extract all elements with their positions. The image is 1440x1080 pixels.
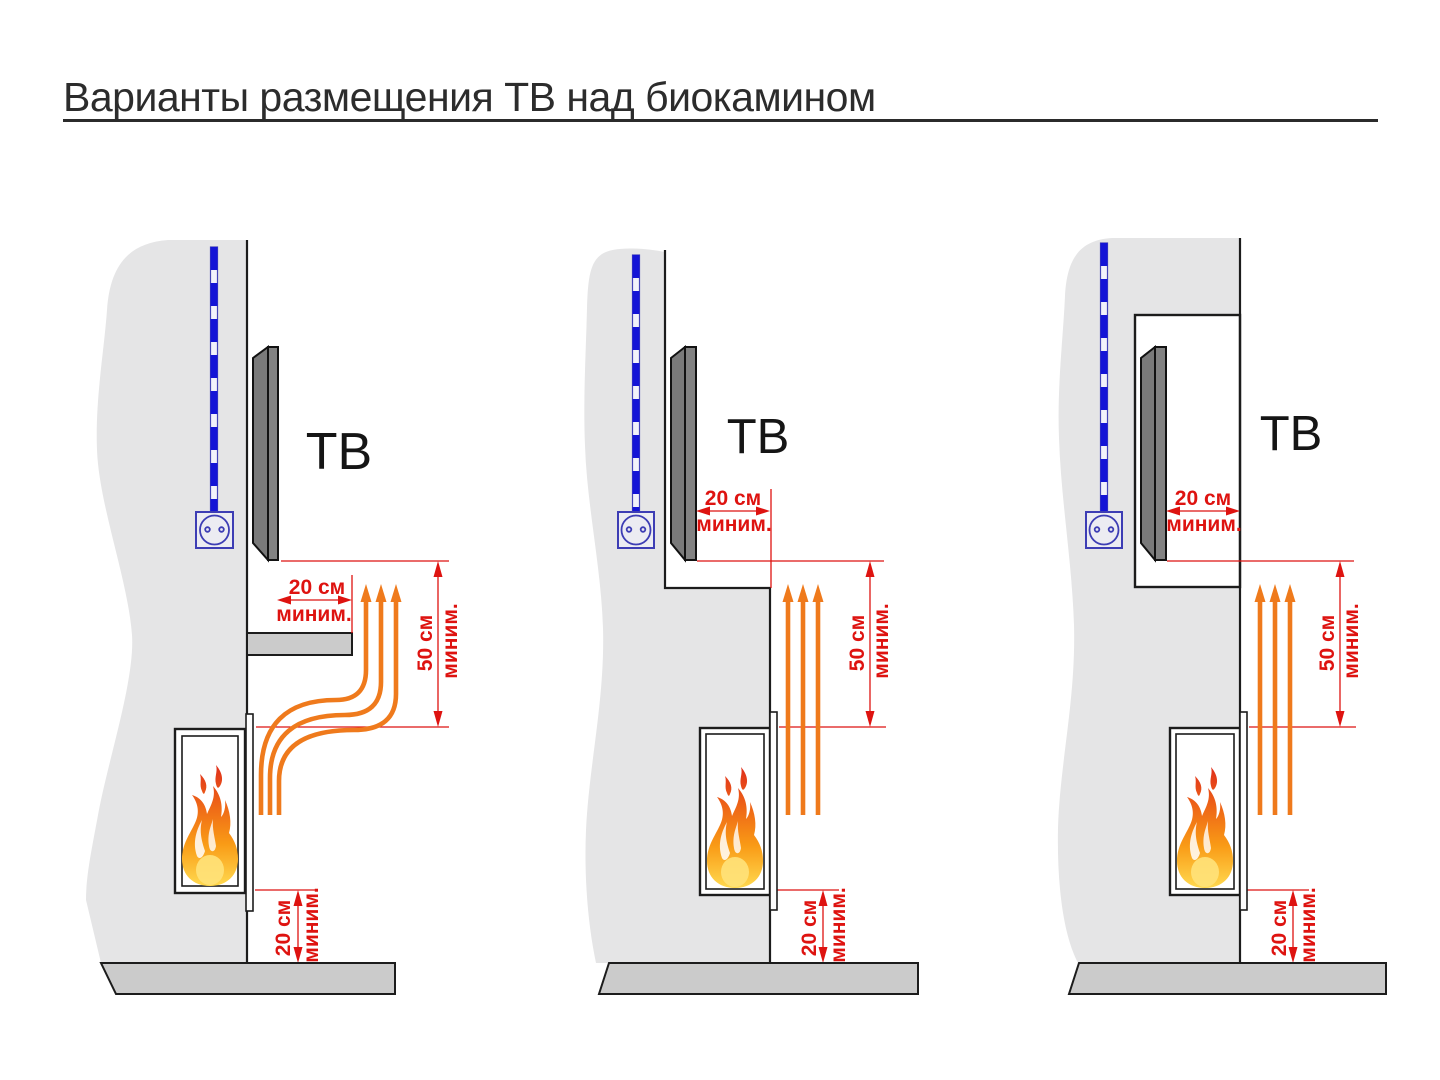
tv-label: ТВ [727,410,790,464]
dim-vertical-value: 50 см [1316,615,1339,671]
dim-front-value: 20 см [289,576,345,599]
glass-panel [246,714,253,911]
diagram-tv-above-shelf: ТВ 20 см миним. 50 см миним. [86,240,462,994]
tv-side-view [1155,347,1166,560]
dim-vertical-value: 50 см [846,615,869,671]
power-outlet-icon [1086,512,1122,548]
dim-front-value: 20 см [1175,487,1231,510]
floor-slab [101,963,395,994]
diagram-tv-recessed-step: ТВ 20 см миним. 50 см миним. [584,248,918,994]
tv-back-panel [253,347,268,560]
dim-front-qualifier: миним. [696,513,771,536]
heat-flow-arrows [1255,584,1296,815]
dim-floor-qualifier: миним. [1297,887,1320,962]
dim-floor-qualifier: миним. [827,887,850,962]
dim-front-clearance: 20 см миним. [276,576,352,626]
tv-label: ТВ [306,423,372,481]
tv-side-view [268,347,278,560]
dim-floor-clearance: 20 см миним. [1268,887,1320,963]
dim-vertical-clearance: 50 см миним. [414,561,462,727]
dim-front-qualifier: миним. [276,603,351,626]
tv-back-panel [1141,347,1155,560]
dim-front-clearance: 20 см миним. [1166,487,1242,536]
dim-front-value: 20 см [705,487,761,510]
dim-vertical-qualifier: миним. [439,603,462,678]
dim-vertical-qualifier: миним. [870,603,893,678]
tv-back-panel [671,347,685,560]
dim-floor-clearance: 20 см миним. [272,887,323,963]
glass-panel [1240,712,1247,910]
power-outlet-icon [196,512,233,548]
tv-label: ТВ [1260,407,1323,461]
dim-floor-value: 20 см [1268,900,1291,956]
glass-panel [770,712,777,910]
page: { "title": "Варианты размещения ТВ над б… [0,0,1440,1080]
floor-slab [599,963,918,994]
diagram-canvas: ТВ 20 см миним. 50 см миним. [0,0,1440,1080]
floor-slab [1069,963,1386,994]
dim-front-clearance: 20 см миним. [696,487,772,536]
diagram-tv-in-niche: ТВ 20 см миним. 50 см миним. [1058,238,1386,994]
deflector-shelf [247,633,352,655]
heat-flow-arrows [783,584,824,815]
dim-vertical-value: 50 см [414,615,437,671]
dim-vertical-qualifier: миним. [1340,603,1363,678]
dim-floor-value: 20 см [272,900,295,956]
dim-floor-value: 20 см [798,900,821,956]
dim-front-qualifier: миним. [1166,513,1241,536]
tv-side-view [685,347,696,560]
power-outlet-icon [618,512,654,548]
dim-floor-qualifier: миним. [300,887,323,962]
dim-floor-clearance: 20 см миним. [798,887,850,963]
dim-vertical-clearance: 50 см миним. [846,561,893,727]
dim-vertical-clearance: 50 см миним. [1316,561,1363,727]
